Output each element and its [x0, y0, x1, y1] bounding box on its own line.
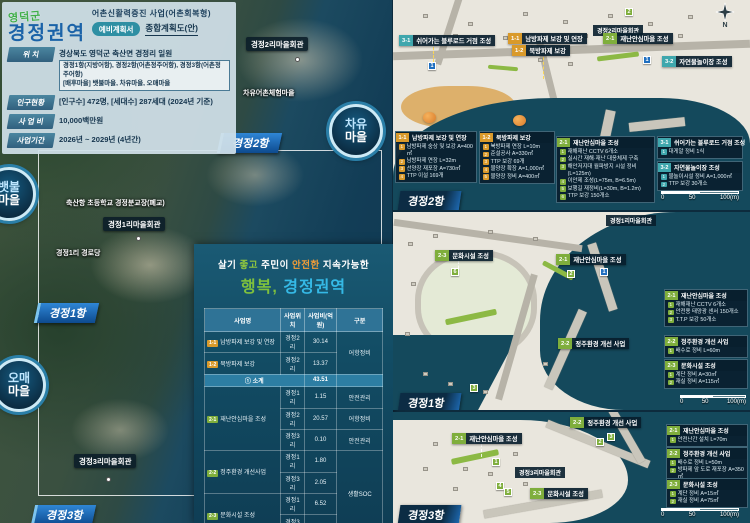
- project-name-cell: 2-3문화시설 조성: [205, 494, 281, 523]
- location-ports: 경정1항(지방어항), 경정2항(어촌정주어항), 경정3항(어촌정주어항): [63, 62, 226, 80]
- callout-2-1: 2-1재난안심마을 조성: [603, 33, 673, 44]
- building: [423, 372, 428, 376]
- slogan-happiness: 행복,: [241, 279, 278, 296]
- detail-item-number: 1: [661, 174, 667, 180]
- project-strip: [597, 51, 639, 61]
- location-villages: [배후마을] 뱃불마을, 차유마을, 오매마을: [63, 80, 226, 89]
- cost-cell: 6.52: [304, 494, 337, 515]
- map-text-label: 경정1리 경로당: [56, 248, 100, 258]
- detail-item-number: 2: [661, 182, 667, 188]
- detail-item-text: 대게알 정비 1식: [669, 149, 705, 156]
- detail-box-tag: 3-2: [658, 163, 671, 172]
- detail-item-number: 3: [560, 164, 566, 170]
- detail-box-tag: 2-3: [667, 480, 680, 489]
- scale-bar-line: [661, 191, 739, 194]
- detail-box-title-text: 문화시설 조성: [681, 361, 716, 370]
- cost-cell: 43.51: [304, 374, 337, 386]
- detail-item: 2실시간 재해·재난 대응체제 구축: [557, 156, 654, 164]
- category-cell: 안전관리: [337, 387, 383, 408]
- detail-item-text: 계단 정비 A=15㎡: [678, 491, 719, 498]
- info-row: 인구현황[인구수] 472명, [세대수] 287세대 (2024년 기준): [8, 95, 230, 110]
- building: [433, 234, 438, 238]
- detail-item: 3해안저지대 월파방지 시설 정비(L=125m): [557, 163, 654, 178]
- detail-item: 1계단 정비 A=15㎡: [667, 490, 747, 498]
- map-marker-1: 1: [428, 62, 436, 70]
- detail-item-text: 물양장 확장 A=1,000㎡: [491, 166, 544, 173]
- facility-dot: [106, 477, 111, 482]
- title-block: 영덕군 경정권역 어촌신활력증진 사업(어촌회복형) 예비계획서 종합계획도(안…: [2, 2, 236, 154]
- scale-bar-line: [661, 508, 739, 511]
- detail-box-title: 2-1재난안심마을 조성: [667, 425, 747, 436]
- detail-item-text: 북방파제 연장 L=10m: [491, 144, 540, 151]
- detail-item: 1남방파제 숭상 및 보강 A=400㎡: [396, 143, 476, 158]
- scale-bar-numbers: 050100(m): [661, 512, 739, 518]
- detail-item-text: TTP 보강 30개소: [669, 181, 708, 188]
- info-row: 위 치경상북도 영덕군 축산면 경정리 일원경정1항(지방어항), 경정2항(어…: [8, 47, 230, 91]
- building: [563, 20, 568, 24]
- detail-item: 1북방파제 연장 L=10m: [480, 143, 554, 151]
- detail-box-2-3: 2-3문화시설 조성1계단 정비 A=30㎡2재실 정비 A=115㎡: [664, 359, 748, 389]
- callout-tag: 2-1: [556, 254, 570, 265]
- info-value-text: 10,000백만원: [59, 116, 103, 126]
- detail-box-tag: 1-1: [396, 133, 409, 142]
- detail-item-text: 안전용 태양광 센서 150개소: [676, 309, 739, 316]
- cost-cell: 20.57: [304, 408, 337, 429]
- building: [648, 22, 653, 26]
- scale-bar-numbers: 050100(m): [661, 195, 739, 201]
- map-marker-4: 4: [496, 482, 504, 490]
- cost-cell: 2.05: [304, 472, 337, 493]
- callout-label: 쉬어가는 블루로드 거점 조성: [416, 36, 491, 45]
- info-value: 10,000백만원: [59, 114, 103, 126]
- project-tag: 2-1: [207, 416, 218, 423]
- facility-badge: 경정1리마을회관: [103, 217, 165, 231]
- building: [405, 332, 410, 336]
- detail-item-text: 재실 정비 A=115㎡: [676, 379, 720, 386]
- table-row: 1-1남방파제 보강 및 연장경정2리30.14어항정비: [205, 332, 383, 353]
- project-name-cell: 1-2북방파제 보강: [205, 353, 281, 374]
- detail-item: 5보행길 재정비(L=30m, B=1.2m): [557, 185, 654, 193]
- callout-leader-line: [433, 47, 434, 62]
- detail-item-text: 재실 정비 A=75㎡: [678, 498, 719, 505]
- project-title: 어촌신활력증진 사업(어촌회복형): [92, 8, 230, 19]
- detail-box-title-text: 북방파제 보강: [496, 133, 531, 142]
- info-value: 경상북도 영덕군 축산면 경정리 일원경정1항(지방어항), 경정2항(어촌정주…: [59, 47, 230, 91]
- building: [463, 467, 468, 471]
- slogan-line1: 살기 좋고 주민이 안전한 지속가능한: [194, 257, 393, 271]
- callout-label: 북방파제 보강: [529, 46, 566, 55]
- info-value: 2026년 ~ 2029년 (4년간): [59, 133, 141, 145]
- slogan-word: 지속가능한: [320, 260, 369, 271]
- callout-2-2: 2-2정주환경 개선 사업: [558, 338, 629, 349]
- map-marker-2: 2: [596, 438, 604, 446]
- detail-box-tag: 3-1: [658, 138, 671, 147]
- detail-item-number: 5: [560, 186, 566, 192]
- detail-box-title: 3-2자연물놀이장 조성: [658, 162, 742, 173]
- slogan-line2: 행복, 경정권역: [194, 273, 393, 297]
- summary-name-cell: ① 소계: [205, 374, 305, 386]
- detail-box-title: 2-2정주환경 개선 사업: [665, 336, 747, 347]
- detail-item: 1재해재난 CCTV 6개소: [557, 148, 654, 156]
- detail-item-number: 1: [670, 491, 676, 497]
- building: [568, 62, 573, 66]
- cost-cell: 4.50: [304, 515, 337, 523]
- callout-tag: 1-1: [508, 33, 522, 44]
- building: [678, 34, 683, 38]
- callout-label: 남방파제 보강 및 연장: [525, 34, 582, 43]
- village-circle-뱃불: 뱃불마을: [0, 167, 36, 221]
- cost-cell: 30.14: [304, 332, 337, 353]
- panel-title-badge: 경정3항: [398, 505, 462, 523]
- callout-tag: 3-2: [662, 56, 676, 67]
- detail-box-title: 2-2정주환경 개선 사업: [667, 448, 747, 459]
- plan-panel-port3: 경정3항경정3리마을회관2-2정주환경 개선 사업2-1재난안심마을 조성2-3…: [393, 412, 750, 523]
- facility-badge: 경정3리마을회관: [515, 467, 565, 478]
- detail-item-text: TTP 보강 69개: [491, 159, 525, 166]
- detail-item: 5물양장 정비 A=400㎡: [480, 173, 554, 181]
- building: [488, 472, 493, 476]
- scale-end: 100(m): [720, 195, 739, 201]
- detail-item-number: 1: [668, 302, 674, 308]
- road: [393, 219, 582, 252]
- detail-item: 4이안제 조성(L=75m, B=6.5m): [557, 178, 654, 186]
- detail-item: 4TTP 이설 169개: [396, 173, 476, 181]
- callout-tag: 2-2: [558, 338, 572, 349]
- detail-box-title-text: 남방파제 보강 및 연장: [412, 133, 467, 142]
- village-name-line2: 마을: [345, 131, 367, 144]
- table-header: 사업명: [205, 309, 281, 332]
- detail-item-text: 선양장 재포장 A=730㎡: [407, 166, 461, 173]
- detail-box-2-1: 2-1재난안심마을 조성1안전난간 설치 L=70m: [666, 424, 748, 447]
- building: [523, 482, 528, 486]
- info-label: 사업기간: [7, 133, 56, 148]
- building: [411, 282, 416, 286]
- map-marker-3: 3: [607, 433, 615, 441]
- panel-scale-bar: 050100(m): [661, 191, 739, 201]
- detail-item-number: 5: [483, 174, 489, 180]
- detail-item-number: 1: [670, 437, 676, 443]
- callout-label: 정주환경 개선 사업: [587, 418, 637, 427]
- detail-item-number: 1: [560, 149, 566, 155]
- panel-compass-icon: N: [715, 2, 735, 29]
- callout-leader-line: [543, 57, 544, 79]
- map-text-label: 축산항 초등학교 경정분교장(폐교): [66, 198, 165, 208]
- detail-item-text: TTP 보강 150개소: [568, 193, 610, 200]
- detail-box-title-text: 쉬어가는 블루로드 거점 조성: [674, 138, 745, 147]
- detail-box-title: 1-2북방파제 보강: [480, 132, 554, 143]
- village-name-line2: 마을: [8, 385, 30, 398]
- detail-item-number: 2: [399, 159, 405, 165]
- cost-cell: 0.10: [304, 429, 337, 450]
- port-badge-2: 경정1항: [34, 303, 100, 323]
- callout-2-1: 2-1재난안심마을 조성: [452, 433, 522, 444]
- detail-box-title-text: 재난안심마을 조성: [681, 291, 727, 300]
- detail-box-1-2: 1-2북방파제 보강1북방파제 연장 L=10m2준설공사 A=330㎡3TTP…: [479, 131, 555, 184]
- project-summary-table: 사업명사업위치사업비(억원)구분1-1남방파제 보강 및 연장경정2리30.14…: [204, 308, 383, 523]
- info-value-text: [인구수] 472명, [세대수] 287세대 (2024년 기준): [59, 97, 213, 107]
- doc-type-label: 종합계획도(안): [145, 22, 198, 36]
- detail-item-number: 1: [668, 348, 674, 354]
- detail-item-text: 물양장 정비 A=400㎡: [491, 174, 540, 181]
- callout-2-3: 2-3문화시설 조성: [435, 250, 493, 261]
- project-name-cell: 2-1재난안심마을 조성: [205, 387, 281, 451]
- panel-title-badge: 경정1항: [398, 393, 462, 410]
- location-cell: 경정1리: [281, 451, 304, 472]
- building: [538, 58, 543, 62]
- detail-box-2-1: 2-1재난안심마을 조성1재해재난 CCTV 6개소2실시간 재해·재난 대응체…: [556, 136, 655, 203]
- detail-item: 6TTP 보강 150개소: [557, 193, 654, 201]
- detail-item: 1안전난간 설치 L=70m: [667, 436, 747, 444]
- project-tag: 1-1: [207, 340, 218, 347]
- category-cell: 생활SOC: [337, 451, 383, 523]
- panel-scale-bar: 050100(m): [680, 395, 746, 405]
- slogan-word: 좋고: [240, 260, 258, 271]
- map-marker-1: 1: [600, 268, 608, 276]
- callout-tag: 2-1: [603, 33, 617, 44]
- detail-box-tag: 1-2: [480, 133, 493, 142]
- port-badge-3: 경정3항: [31, 505, 97, 523]
- callout-3-2: 3-2자연물놀이장 조성: [662, 56, 732, 67]
- cost-cell: 1.80: [304, 451, 337, 472]
- detail-item: 1배수로 정비 L=60m: [665, 347, 747, 355]
- detail-item: 2재실 정비 A=115㎡: [665, 379, 747, 387]
- detail-box-title-text: 정주환경 개선 사업: [683, 449, 731, 458]
- detail-item-text: 보행길 재정비(L=30m, B=1.2m): [568, 186, 641, 193]
- table-row: 2-2정주환경 개선사업경정1리1.80생활SOC: [205, 451, 383, 472]
- detail-box-2-2: 2-2정주환경 개선 사업1배수로 정비 L=60m: [664, 335, 748, 358]
- info-label: 위 치: [7, 47, 56, 62]
- callout-label: 정주환경 개선 사업: [575, 339, 625, 348]
- summary-panel: 살기 좋고 주민이 안전한 지속가능한 행복, 경정권역 사업명사업위치사업비(…: [194, 244, 393, 523]
- detail-item-number: 2: [670, 499, 676, 505]
- detail-box-tag: 2-2: [667, 449, 680, 458]
- table-header: 사업위치: [281, 309, 304, 332]
- slogan-word: 살기: [218, 260, 240, 271]
- callout-tag: 1-2: [512, 45, 526, 56]
- detail-item-number: 4: [560, 179, 566, 185]
- table-row-sub: ① 소계43.51: [205, 374, 383, 386]
- building: [523, 12, 528, 16]
- building: [533, 237, 538, 241]
- slogan-word: 안전한: [292, 260, 320, 271]
- map-marker-1: 1: [492, 458, 500, 466]
- map-marker-2: 2: [567, 270, 575, 278]
- callout-1-1: 1-1남방파제 보강 및 연장: [508, 33, 587, 44]
- location-cell: 경정3리: [281, 515, 304, 523]
- scale-bar-numbers: 050100(m): [680, 399, 746, 405]
- detail-box-title-text: 재난안심마을 조성: [683, 426, 729, 435]
- callout-2-2: 2-2정주환경 개선 사업: [570, 417, 641, 428]
- detail-item: 2안전용 태양광 센서 150개소: [665, 309, 747, 317]
- detail-box-title: 1-1남방파제 보강 및 연장: [396, 132, 476, 143]
- building: [433, 442, 438, 446]
- detail-box-title: 2-3문화시설 조성: [667, 479, 747, 490]
- detail-box-title-text: 문화시설 조성: [683, 480, 718, 489]
- panel-scale-bar: 050100(m): [661, 508, 739, 518]
- detail-item-number: 3: [399, 166, 405, 172]
- detail-box-title-text: 재난안심마을 조성: [573, 138, 619, 147]
- category-cell: [337, 374, 383, 386]
- facility-badge: 경정3리마을회관: [74, 454, 136, 468]
- detail-item-text: 배수로 정비 L=50m: [678, 460, 722, 467]
- plan-poster: 차유마을뱃불마을오매마을경정2항경정1항경정3항경정2리마을회관경정1리마을회관…: [0, 0, 750, 523]
- detail-box-tag: 2-1: [665, 291, 678, 300]
- detail-item-number: 2: [668, 310, 674, 316]
- scale-end: 100(m): [720, 512, 739, 518]
- location-detail-box: 경정1항(지방어항), 경정2항(어촌정주어항), 경정3항(어촌정주어항)[배…: [59, 60, 230, 91]
- detail-item-text: 재해재난 CCTV 6개소: [568, 149, 618, 156]
- crab-mascot-icon: [423, 112, 436, 123]
- doc-stage-badge: 예비계획서: [92, 22, 141, 36]
- callout-label: 문화시설 조성: [547, 489, 584, 498]
- map-text-label: 차유어촌체험마을: [243, 88, 295, 98]
- project-tag: 2-3: [207, 513, 218, 520]
- callout-tag: 3-1: [399, 35, 413, 46]
- detail-box-1-1: 1-1남방파제 보강 및 연장1남방파제 숭상 및 보강 A=400㎡2남방파제…: [395, 131, 477, 183]
- callout-tag: 2-3: [530, 488, 544, 499]
- detail-item-number: 2: [670, 468, 676, 474]
- detail-item-text: 안전난간 설치 L=70m: [678, 437, 727, 444]
- detail-item-number: 3: [668, 317, 674, 323]
- info-value: [인구수] 472명, [세대수] 287세대 (2024년 기준): [59, 95, 213, 107]
- callout-3-1: 3-1쉬어가는 블루로드 거점 조성: [399, 35, 495, 46]
- detail-box-title-text: 정주환경 개선 사업: [681, 337, 729, 346]
- detail-box-2-3: 2-3문화시설 조성1계단 정비 A=15㎡2재실 정비 A=75㎡: [666, 478, 748, 508]
- callout-label: 문화시설 조성: [452, 251, 489, 260]
- building: [513, 452, 518, 456]
- detail-item-text: 해안저지대 월파방지 시설 정비(L=125m): [568, 164, 651, 178]
- scale-bar-line: [680, 395, 746, 398]
- building: [408, 242, 413, 246]
- building: [543, 362, 548, 366]
- detail-item: 3T.T.P 보강 50개소: [665, 316, 747, 324]
- location-cell: 경정3리: [281, 429, 304, 450]
- detail-box-2-1: 2-1재난안심마을 조성1재해재난 CCTV 6개소2안전용 태양광 센서 15…: [664, 289, 748, 327]
- category-cell: 안전관리: [337, 429, 383, 450]
- village-name-line2: 마을: [0, 194, 20, 207]
- project-tag: 2-2: [207, 470, 218, 477]
- info-label: 사 업 비: [7, 114, 56, 129]
- plan-panel-port2: N 경정2항경정2리마을회관3-1쉬어가는 블루로드 거점 조성1-1남방파제 …: [393, 0, 750, 210]
- callout-label: 재난안심마을 조성: [573, 255, 621, 264]
- table-header: 구분: [337, 309, 383, 332]
- detail-item: 4물양장 확장 A=1,000㎡: [480, 166, 554, 174]
- building: [688, 15, 693, 19]
- village-circle-차유: 차유마을: [329, 104, 383, 158]
- slogan-region-name: 경정권역: [283, 279, 346, 296]
- location-cell: 경정1리: [281, 387, 304, 408]
- callout-2-1: 2-1재난안심마을 조성: [556, 254, 626, 265]
- scale-mid: 50: [689, 512, 696, 518]
- callout-tag: 2-3: [435, 250, 449, 261]
- building: [488, 230, 493, 234]
- detail-item-text: 재해재난 CCTV 6개소: [676, 302, 726, 309]
- detail-box-title: 3-1쉬어가는 블루로드 거점 조성: [658, 137, 742, 148]
- scale-start: 0: [680, 399, 683, 405]
- detail-item-number: 2: [560, 157, 566, 163]
- map-marker-1: 1: [643, 56, 651, 64]
- building: [468, 22, 473, 26]
- detail-item-number: 1: [483, 144, 489, 150]
- callout-leader-line: [481, 444, 482, 457]
- project-name-cell: 1-1남방파제 보강 및 연장: [205, 332, 281, 353]
- category-cell: 어항정비: [337, 332, 383, 375]
- detail-item-number: 3: [483, 159, 489, 165]
- location-cell: 경정2리: [281, 353, 304, 374]
- facility-dot: [136, 236, 141, 241]
- scale-mid: 50: [689, 195, 696, 201]
- detail-item-text: 배수로 정비 L=60m: [676, 348, 720, 355]
- detail-item: 1재해재난 CCTV 6개소: [665, 301, 747, 309]
- info-row: 사업기간2026년 ~ 2029년 (4년간): [8, 133, 230, 148]
- callout-1-2: 1-2북방파제 보강: [512, 45, 570, 56]
- compass-north-label: N: [722, 22, 727, 29]
- detail-box-title: 2-1재난안심마을 조성: [665, 290, 747, 301]
- info-value-text: 경상북도 영덕군 축산면 경정리 일원: [59, 49, 230, 59]
- detail-item-number: 4: [483, 167, 489, 173]
- detail-box-tag: 2-2: [665, 337, 678, 346]
- panel-title-badge: 경정2항: [398, 191, 462, 210]
- category-cell: 어항정비: [337, 408, 383, 429]
- detail-item: 1물놀이시설 정비 A=1,000㎡: [658, 173, 742, 181]
- plan-panel-port1: 경정1항경정1리마을회관2-3문화시설 조성2-1재난안심마을 조성2-2정주환…: [393, 212, 750, 410]
- location-cell: 경정1리: [281, 494, 304, 515]
- map-marker-5: 5: [504, 488, 512, 496]
- callout-label: 재난안심마을 조성: [620, 34, 668, 43]
- detail-item: 1계단 정비 A=30㎡: [665, 371, 747, 379]
- scale-start: 0: [661, 512, 664, 518]
- slogan-word: 주민이: [258, 260, 292, 271]
- info-value-text: 2026년 ~ 2029년 (4년간): [59, 135, 141, 145]
- callout-label: 자연물놀이장 조성: [679, 57, 727, 66]
- detail-item: 1대게알 정비 1식: [658, 148, 742, 156]
- detail-item: 2TTP 보강 30개소: [658, 181, 742, 189]
- detail-box-tag: 2-1: [557, 138, 570, 147]
- callout-tag: 2-2: [570, 417, 584, 428]
- detail-item-text: TTP 이설 169개: [407, 173, 444, 180]
- facility-badge: 경정2리마을회관: [246, 37, 308, 51]
- cost-cell: 1.15: [304, 387, 337, 408]
- project-strip: [488, 65, 518, 72]
- map-marker-3: 3: [470, 384, 478, 392]
- info-label: 인구현황: [7, 95, 56, 110]
- detail-item-text: 준설공사 A=330㎡: [491, 151, 533, 158]
- building: [423, 14, 428, 18]
- callout-label: 재난안심마을 조성: [469, 434, 517, 443]
- scale-mid: 50: [702, 399, 709, 405]
- detail-item-text: 물놀이시설 정비 A=1,000㎡: [669, 174, 732, 181]
- detail-item-number: 1: [670, 460, 676, 466]
- detail-item: 1배수로 정비 L=50m: [667, 459, 747, 467]
- detail-item-number: 1: [399, 144, 405, 150]
- detail-box-tag: 2-1: [667, 426, 680, 435]
- crab-mascot-icon: [513, 115, 526, 126]
- detail-item-number: 1: [661, 149, 667, 155]
- detail-item: 3선양장 재포장 A=730㎡: [396, 165, 476, 173]
- location-cell: 경정2리: [281, 332, 304, 353]
- scale-end: 100(m): [727, 399, 746, 405]
- detail-item-number: 4: [399, 174, 405, 180]
- location-cell: 경정2리: [281, 408, 304, 429]
- detail-box-tag: 2-3: [665, 361, 678, 370]
- location-cell: 경정3리: [281, 472, 304, 493]
- detail-item-text: 남방파제 연장 L=32m: [407, 158, 456, 165]
- detail-item: 2재실 정비 A=75㎡: [667, 498, 747, 506]
- detail-item: 2준설공사 A=330㎡: [480, 151, 554, 159]
- table-row: 2-1재난안심마을 조성경정1리1.15안전관리: [205, 387, 383, 408]
- building: [483, 390, 488, 394]
- map-marker-6: 6: [451, 268, 459, 276]
